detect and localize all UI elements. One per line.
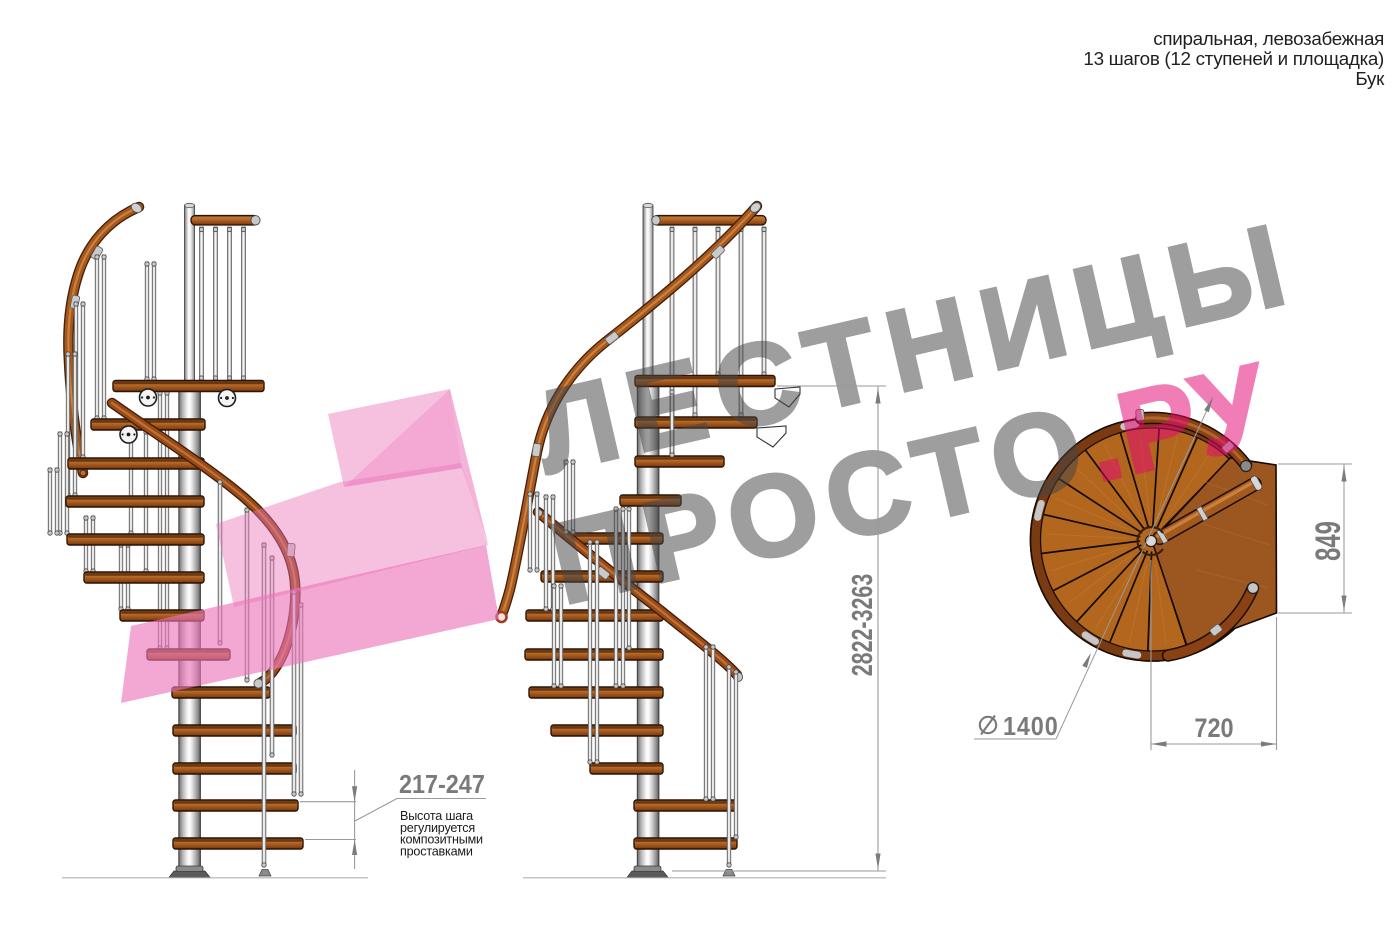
svg-text:Высота шагарегулируетсякомпози: Высота шагарегулируетсякомпозитнымипрост… (400, 809, 483, 858)
svg-text:849: 849 (1310, 521, 1349, 561)
svg-text:720: 720 (1194, 714, 1233, 744)
svg-text:13 шагов (12 ступеней и площад: 13 шагов (12 ступеней и площадка) (1083, 48, 1384, 69)
svg-text:Бук: Бук (1355, 68, 1385, 89)
svg-text:1400: 1400 (1003, 713, 1059, 741)
svg-text:2822-3263: 2822-3263 (847, 574, 879, 677)
svg-text:217-247: 217-247 (399, 771, 485, 799)
svg-text:спиральная, левозабежная: спиральная, левозабежная (1153, 28, 1384, 49)
